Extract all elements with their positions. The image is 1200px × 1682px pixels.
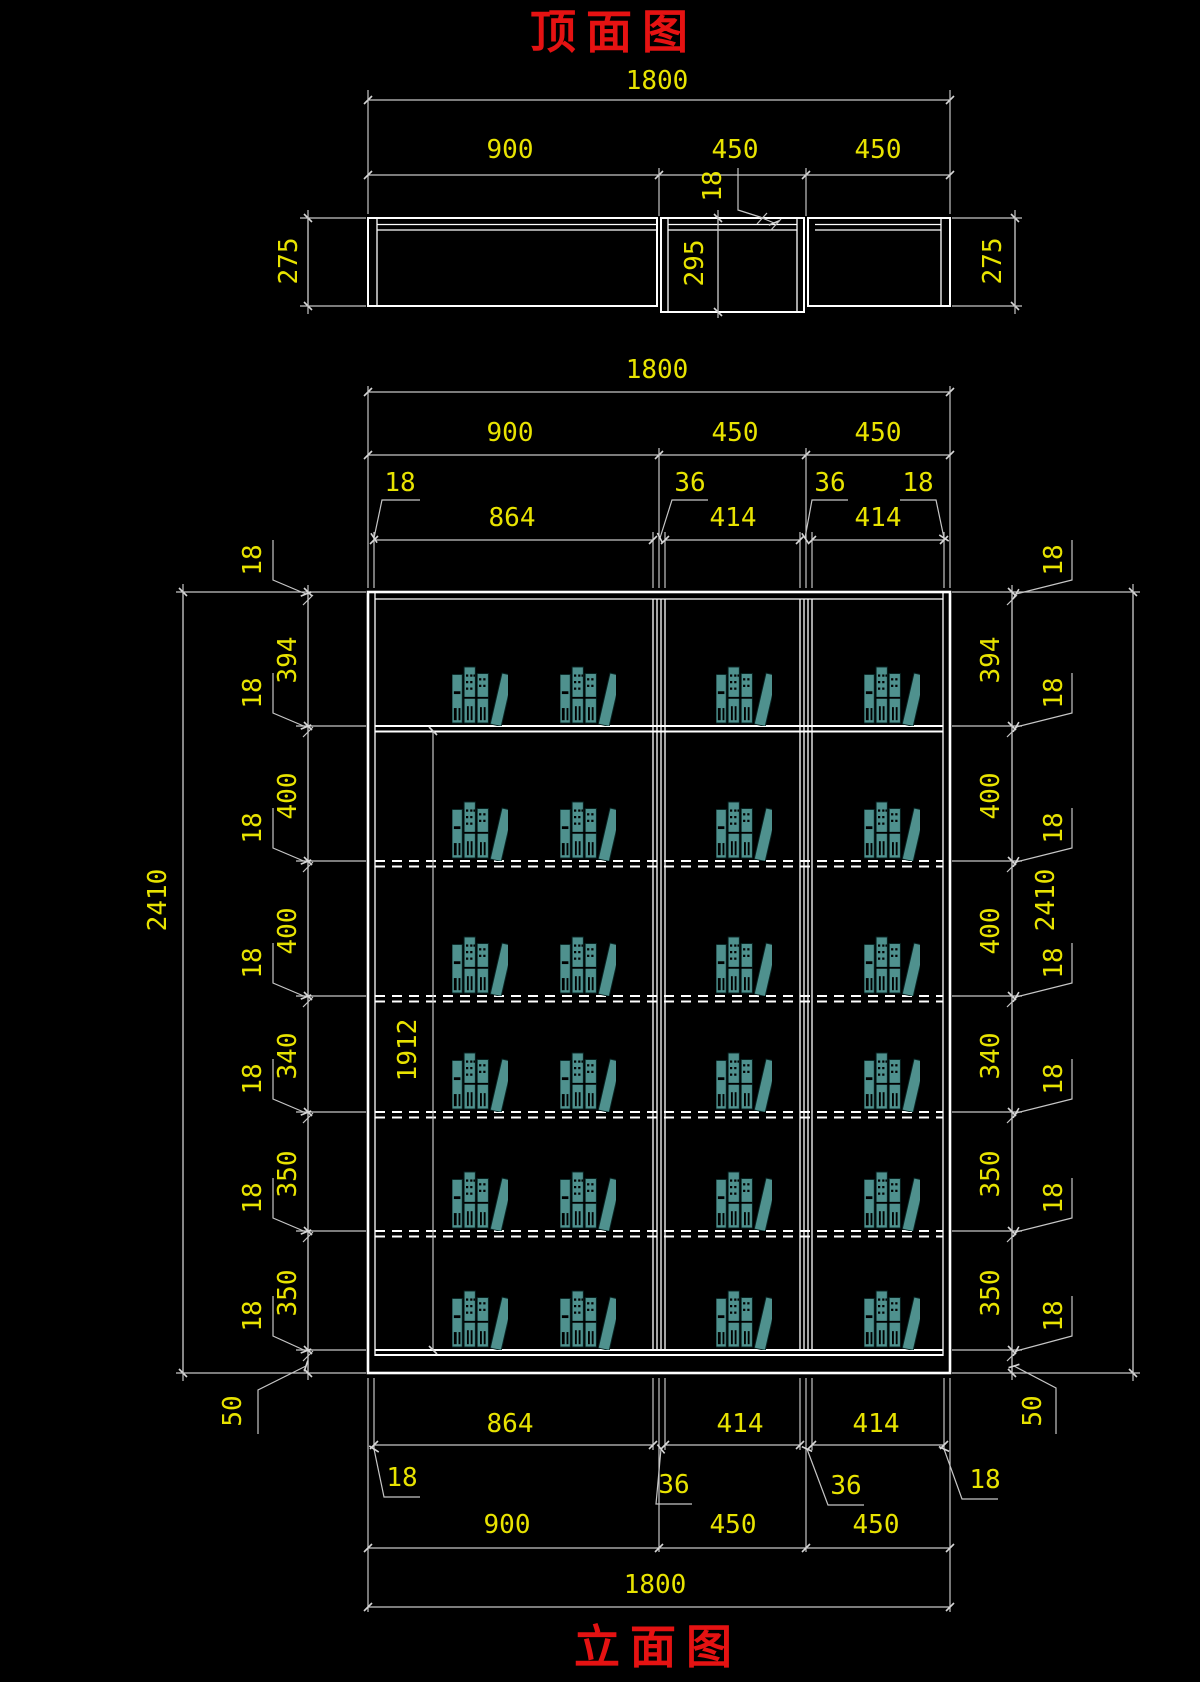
dim-elev-right-panel-2: 18 (1041, 677, 1067, 708)
dim-tv-segment-900: 900 (487, 137, 534, 163)
top-view-outline (368, 218, 950, 312)
dim-elev-right-394: 394 (978, 637, 1004, 684)
dim-elev-left-panel-7: 18 (240, 1300, 266, 1331)
dim-elev-bottom-18r: 18 (969, 1467, 1000, 1493)
dim-elev-bottom-900: 900 (484, 1512, 531, 1538)
cad-linework (0, 0, 1200, 1682)
dim-elev-left-panel-2: 18 (240, 677, 266, 708)
dim-elev-right-350a: 350 (978, 1151, 1004, 1198)
dim-elev-top-overall: 1800 (626, 357, 689, 383)
dim-elev-left-394: 394 (275, 637, 301, 684)
dim-elev-top-36b: 36 (814, 470, 845, 496)
dim-elev-bottom-450b: 450 (853, 1512, 900, 1538)
dim-elev-top-450a: 450 (712, 420, 759, 446)
dim-elev-left-panel-4: 18 (240, 947, 266, 978)
elevation-top-dimension-lines (368, 386, 950, 588)
dim-elev-left-panel-3: 18 (240, 812, 266, 843)
dim-tv-panel-18: 18 (700, 170, 726, 201)
dim-elev-bottom-36b: 36 (830, 1473, 861, 1499)
dim-elev-top-414b: 414 (855, 505, 902, 531)
dim-tv-segment-450a: 450 (712, 137, 759, 163)
shelf-books (452, 667, 925, 1350)
dim-elev-interior-1912: 1912 (395, 1019, 421, 1082)
dim-elev-left-panel-1: 18 (240, 544, 266, 575)
cad-canvas: 顶面图 1800 900 450 450 18 275 295 275 1800… (0, 0, 1200, 1682)
dim-tv-depth-left: 275 (276, 238, 302, 285)
dim-elev-left-base-50: 50 (220, 1395, 246, 1426)
dim-tv-overall: 1800 (626, 68, 689, 94)
dim-elev-right-panel-5: 18 (1041, 1063, 1067, 1094)
dim-elev-right-panel-6: 18 (1041, 1182, 1067, 1213)
dim-elev-right-panel-7: 18 (1041, 1300, 1067, 1331)
dim-elev-top-414a: 414 (710, 505, 757, 531)
dim-elev-right-total: 2410 (1033, 869, 1059, 932)
dim-elev-right-400b: 400 (978, 908, 1004, 955)
dim-elev-right-panel-4: 18 (1041, 947, 1067, 978)
dim-elev-bottom-overall: 1800 (624, 1572, 687, 1598)
dim-elev-bottom-414a: 414 (717, 1411, 764, 1437)
dim-elev-left-400b: 400 (275, 908, 301, 955)
dim-elev-left-350b: 350 (275, 1270, 301, 1317)
elevation-title: 立面图 (574, 1624, 742, 1670)
top-view-title: 顶面图 (530, 9, 698, 55)
dim-elev-right-340: 340 (978, 1033, 1004, 1080)
elevation-left-dimension-lines (176, 540, 433, 1434)
dim-elev-right-base-50: 50 (1020, 1395, 1046, 1426)
dim-elev-bottom-864: 864 (487, 1411, 534, 1437)
dim-elev-bottom-36a: 36 (658, 1472, 689, 1498)
dim-elev-bottom-18l: 18 (386, 1465, 417, 1491)
dim-elev-top-18l: 18 (384, 470, 415, 496)
dim-elev-top-18r: 18 (902, 470, 933, 496)
dim-elev-left-350a: 350 (275, 1151, 301, 1198)
dim-elev-top-450b: 450 (855, 420, 902, 446)
dim-elev-right-400a: 400 (978, 773, 1004, 820)
dim-elev-left-panel-5: 18 (240, 1063, 266, 1094)
dim-elev-top-900: 900 (487, 420, 534, 446)
dim-elev-left-340: 340 (275, 1033, 301, 1080)
dim-elev-left-total: 2410 (145, 869, 171, 932)
dim-tv-depth-right: 275 (980, 238, 1006, 285)
dim-elev-right-panel-3: 18 (1041, 812, 1067, 843)
dim-tv-segment-450b: 450 (855, 137, 902, 163)
dim-tv-depth-middle: 295 (682, 240, 708, 287)
dim-elev-bottom-414b: 414 (853, 1411, 900, 1437)
dim-elev-bottom-450a: 450 (710, 1512, 757, 1538)
dim-elev-top-864: 864 (489, 505, 536, 531)
dim-elev-left-panel-6: 18 (240, 1182, 266, 1213)
dim-elev-right-panel-1: 18 (1041, 544, 1067, 575)
dim-elev-right-350b: 350 (978, 1270, 1004, 1317)
dim-elev-top-36a: 36 (674, 470, 705, 496)
dim-elev-left-400a: 400 (275, 773, 301, 820)
